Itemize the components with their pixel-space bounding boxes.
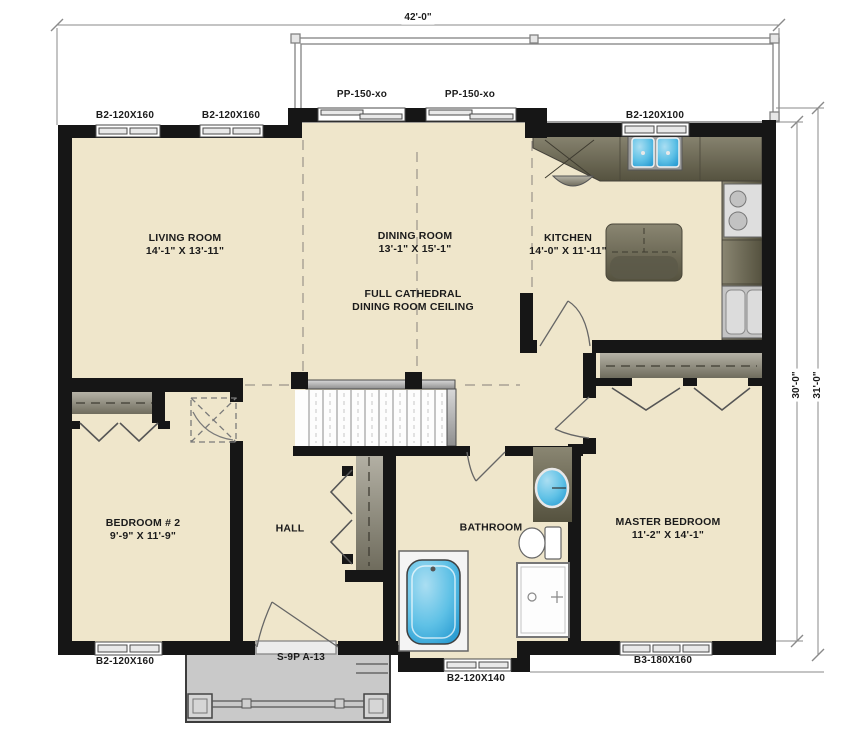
patio-door-tag-2: PP-150-xo (445, 89, 495, 102)
stair-railing (306, 380, 455, 389)
dimension-right-inner: 30'-0" (791, 368, 804, 401)
toilet-icon (519, 527, 561, 559)
ceiling-note: FULL CATHEDRAL DINING ROOM CEILING (352, 288, 474, 314)
window-tag-master: B3-180X160 (634, 655, 692, 668)
kitchen-window-icon (622, 123, 689, 136)
patio-door-tag-1: PP-150-xo (337, 89, 387, 102)
bathtub-icon (399, 551, 468, 651)
room-label-living: LIVING ROOM 14'-1" X 13'-11" (146, 232, 224, 258)
shower-icon (517, 563, 569, 637)
bathroom-window-icon (444, 659, 511, 671)
patio-door-2-icon (426, 108, 516, 121)
master-window-icon (620, 642, 712, 655)
room-label-bedroom2: BEDROOM # 2 9'-9" X 11'-9" (106, 517, 181, 543)
kitchen-sink-icon (628, 135, 682, 170)
living-window-2-icon (200, 125, 263, 137)
bedroom2-window-icon (95, 642, 162, 655)
living-window-1-icon (96, 125, 160, 137)
window-tag-bathroom: B2-120X140 (447, 673, 505, 686)
front-door-tag: S-9P A-13 (277, 652, 325, 665)
kitchen-island-icon (606, 224, 682, 281)
room-label-dining: DINING ROOM 13'-1" X 15'-1" (378, 230, 453, 256)
window-tag-kitchen: B2-120X100 (626, 110, 684, 123)
room-label-hall: HALL (276, 522, 305, 535)
room-label-kitchen: KITCHEN 14'-0" X 11'-11" (529, 232, 607, 258)
window-tag-top-2: B2-120X160 (202, 110, 260, 123)
vanity-sink-icon (533, 447, 572, 522)
window-tag-top-1: B2-120X160 (96, 110, 154, 123)
room-label-master: MASTER BEDROOM 11'-2" X 14'-1" (616, 516, 721, 542)
patio-door-1-icon (318, 108, 405, 121)
cooktop-icon (724, 184, 762, 237)
dimension-top-width: 42'-0" (401, 12, 434, 25)
dimension-right-outer: 31'-0" (812, 368, 825, 401)
window-tag-bedroom2: B2-120X160 (96, 656, 154, 669)
floor-plan: 42'-0" 30'-0" 31'-0" LIVING ROOM 14'-1" … (0, 0, 852, 738)
room-label-bathroom: BATHROOM (460, 521, 523, 534)
